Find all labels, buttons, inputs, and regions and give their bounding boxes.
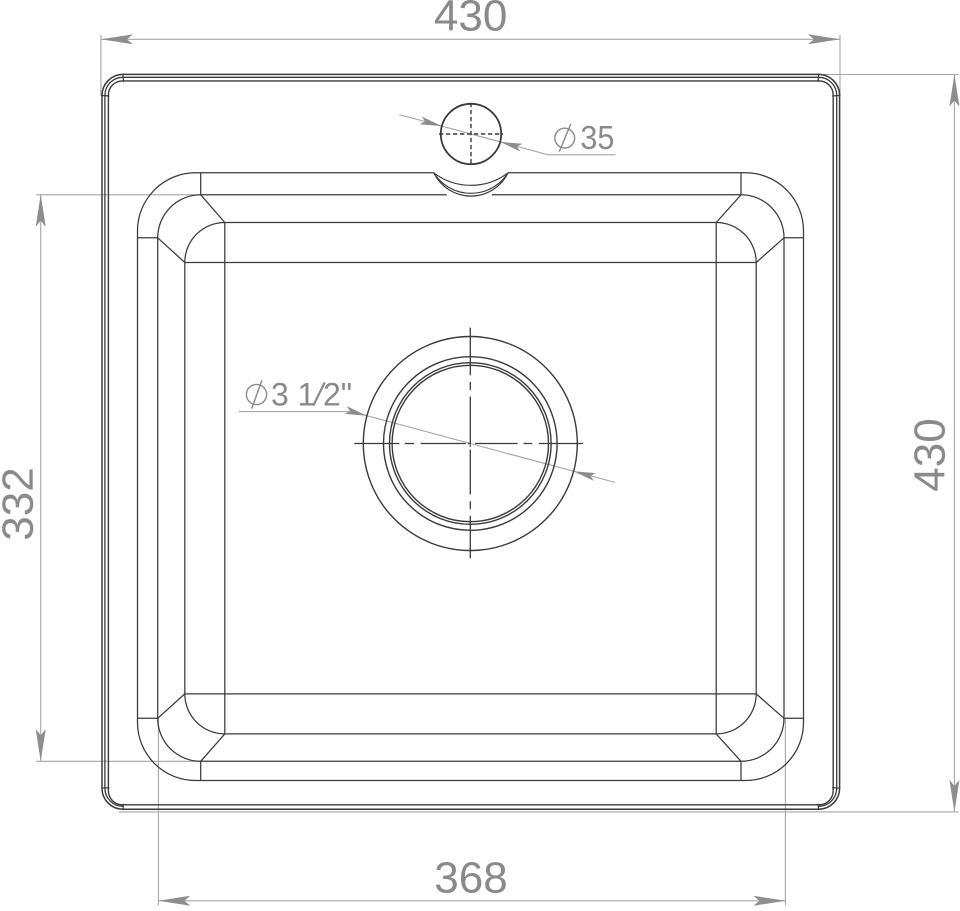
svg-text:3: 3 — [271, 377, 289, 413]
svg-text:368: 368 — [434, 854, 507, 903]
svg-text:332: 332 — [0, 467, 43, 540]
svg-text:430: 430 — [906, 418, 955, 491]
svg-text:1: 1 — [298, 377, 316, 413]
svg-text:430: 430 — [434, 0, 507, 41]
svg-text:35: 35 — [580, 119, 614, 156]
svg-text:2": 2" — [323, 377, 352, 413]
